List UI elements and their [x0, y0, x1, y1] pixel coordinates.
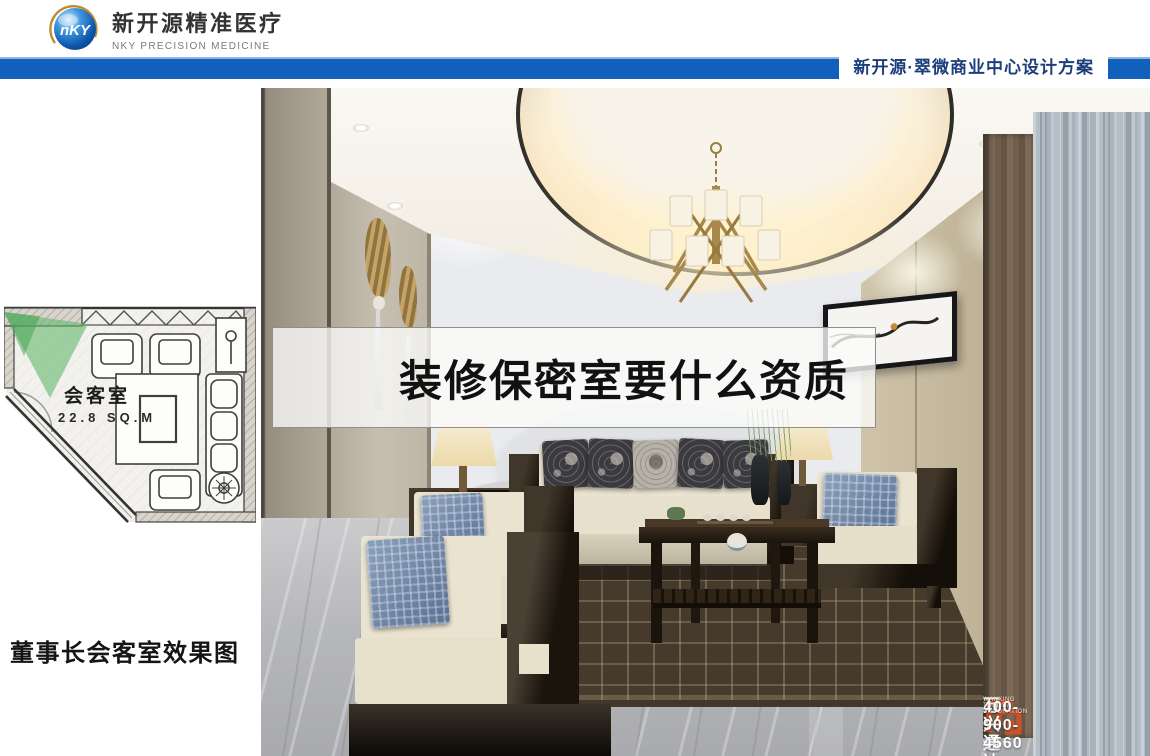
spotlight-icon	[387, 202, 403, 210]
armchair-seat	[355, 638, 525, 704]
lamp-stem	[799, 460, 806, 486]
overlay-title-box: 装修保密室要什么资质	[272, 327, 876, 428]
armchair-leg	[927, 586, 941, 608]
tea-tray	[697, 521, 773, 524]
company-logo: nKY 新开源精准医疗 NKY PRECISION MEDICINE	[48, 3, 284, 55]
nky-globe-icon: nKY	[48, 3, 102, 55]
overlay-title: 装修保密室要什么资质	[399, 347, 849, 409]
porcelain-jar	[727, 533, 747, 551]
company-name-en: NKY PRECISION MEDICINE	[112, 41, 284, 52]
company-name-zh: 新开源精准医疗	[112, 6, 284, 38]
coffee-table	[639, 501, 835, 651]
glass-vase	[777, 461, 791, 505]
render-caption: 董事长会客室效果图	[10, 633, 240, 668]
banner-bar-left	[0, 57, 839, 79]
sofa-pillow	[677, 438, 726, 489]
tea-cup	[716, 514, 725, 521]
frame-fret-notch	[519, 644, 549, 674]
sofa-pillow	[587, 438, 635, 489]
table-shelf-edge	[653, 603, 821, 608]
chandelier	[646, 140, 786, 325]
project-title: 新开源·翠微商业中心设计方案	[839, 57, 1108, 79]
table-leg	[771, 543, 780, 623]
teapot	[667, 507, 685, 520]
glass-vase	[751, 455, 769, 505]
sofa-pillow	[632, 439, 680, 489]
blue-pillow	[366, 535, 450, 628]
wall-left	[4, 326, 14, 388]
wall-ornament-leaf	[365, 218, 391, 298]
presentation-slide: nKY 新开源精准医疗 NKY PRECISION MEDICINE 新开源·翠…	[0, 0, 1150, 756]
logo-monogram: nKY	[60, 22, 92, 39]
banner-bar-right	[1108, 57, 1150, 79]
armchair-frame-base	[349, 704, 611, 756]
armchair-frame	[507, 532, 579, 732]
wall-bottom	[136, 512, 256, 522]
curtain-sheer	[1033, 112, 1150, 756]
watermark-phone: 400-900-4560	[983, 699, 1023, 753]
table-leg	[691, 543, 700, 623]
tea-cup	[729, 514, 738, 521]
armchair-front-lower	[339, 526, 611, 756]
sofa-pillow	[542, 439, 590, 489]
logo-text-block: 新开源精准医疗 NKY PRECISION MEDICINE	[112, 6, 284, 52]
floorplan-drawing: 会客室 22.8 SQ.M	[4, 292, 256, 528]
tea-cup	[703, 514, 712, 521]
tea-cup	[742, 514, 751, 521]
wall-ornament-bead	[373, 296, 385, 310]
title-banner: 新开源·翠微商业中心设计方案	[0, 57, 1150, 79]
plan-room-area: 22.8 SQ.M	[58, 410, 156, 425]
watermark: 万兴通达装饰 WANXING TONGDA DECORATION 400-900…	[983, 696, 1025, 738]
spotlight-icon	[353, 124, 369, 132]
wall-ornament-leaf	[399, 266, 417, 328]
table-shelf	[653, 589, 821, 603]
plan-room-name: 会客室	[64, 384, 130, 407]
